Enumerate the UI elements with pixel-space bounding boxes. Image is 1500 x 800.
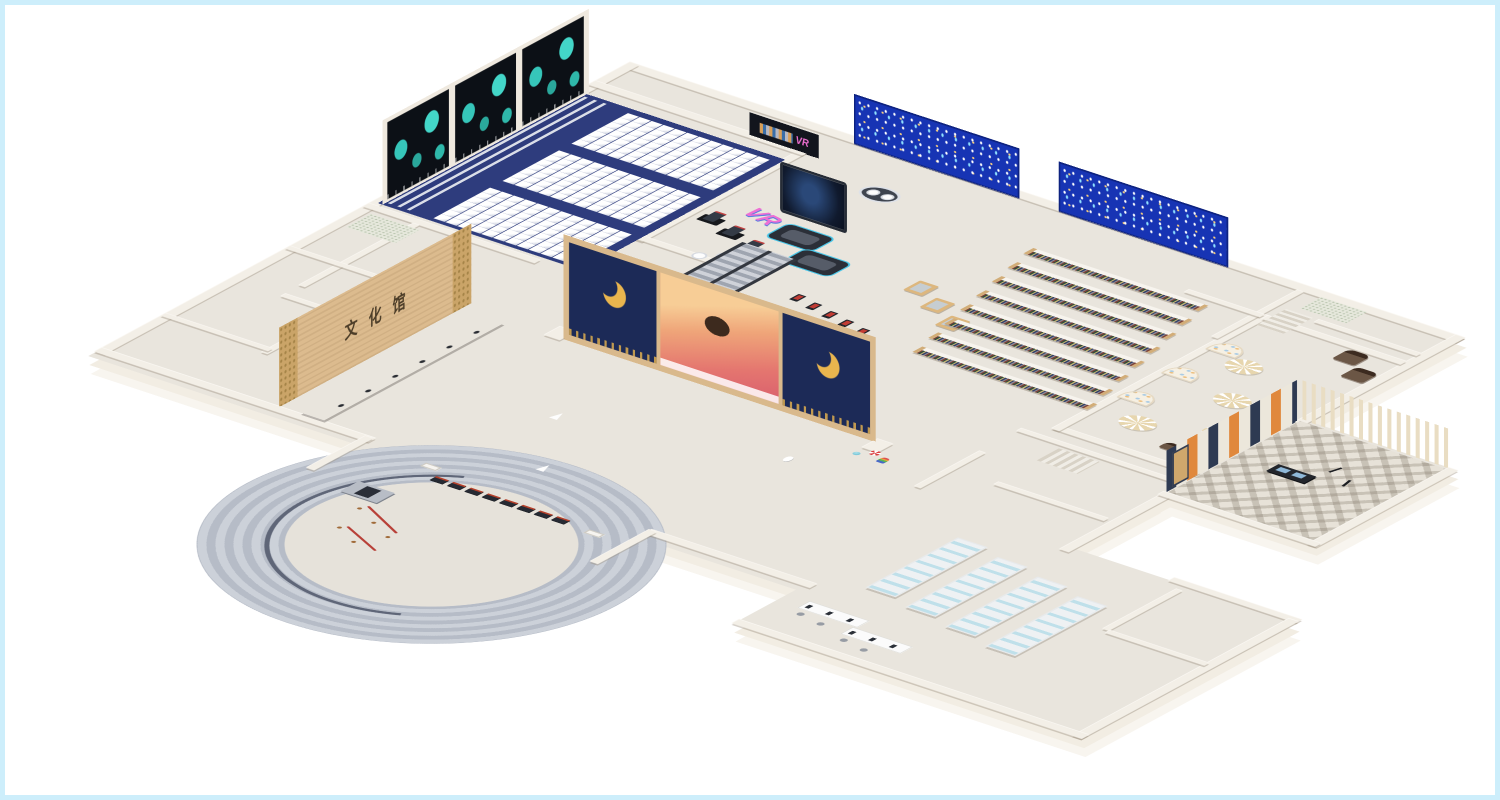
floorplan-scene: VR VR bbox=[5, 5, 1495, 795]
page-frame: VR VR bbox=[0, 0, 1500, 800]
building-plan: VR VR bbox=[5, 63, 1495, 795]
billboard-panel-left bbox=[569, 242, 656, 363]
studio-door bbox=[1173, 444, 1189, 487]
billboard-panel-right bbox=[783, 313, 870, 434]
vr-sign-label: VR bbox=[796, 133, 809, 150]
vr-egg-chair bbox=[878, 193, 898, 201]
